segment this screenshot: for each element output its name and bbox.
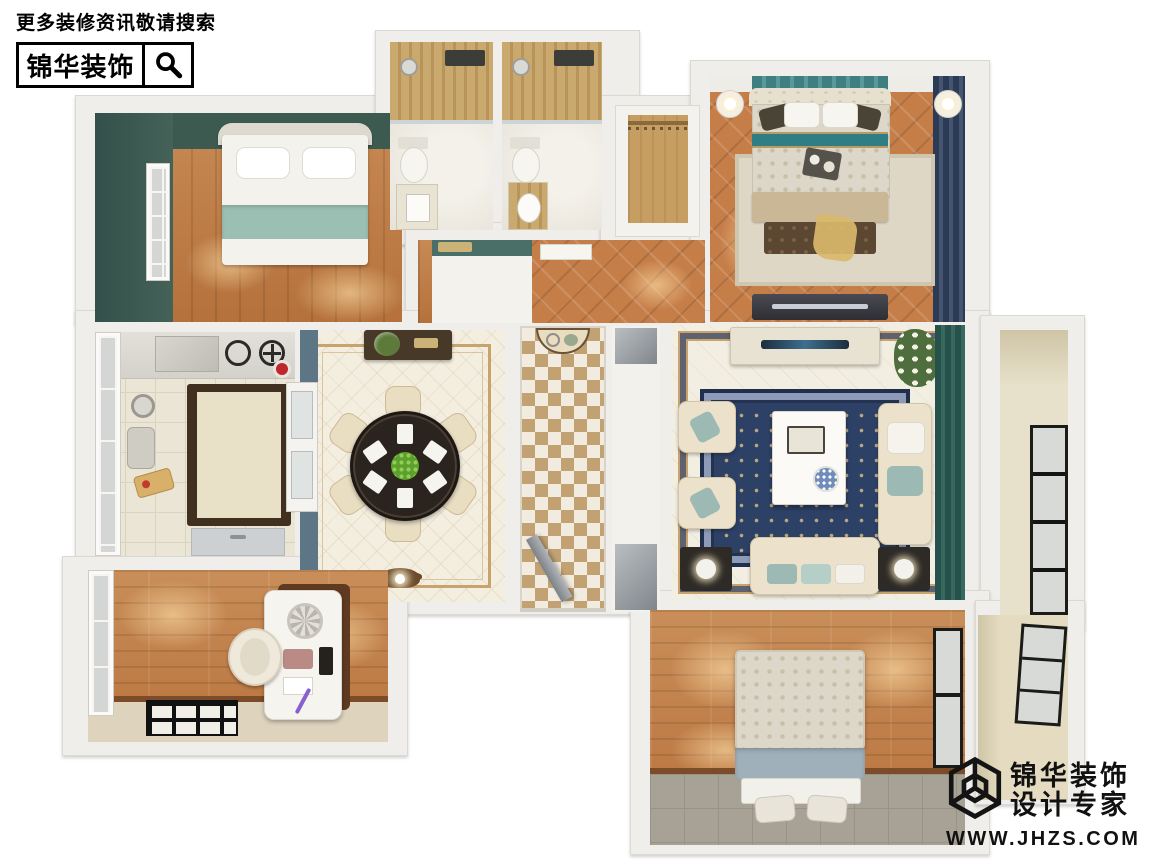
bedroom-br-bed	[735, 650, 865, 828]
cube-logo-icon	[946, 756, 1004, 825]
console-plant	[564, 334, 578, 346]
room-bedroom-bottom	[650, 610, 965, 845]
bath2-shower-head	[512, 58, 530, 76]
master-white-pillow	[784, 102, 820, 128]
living-tv	[761, 340, 849, 349]
study-grid-mat	[146, 700, 238, 736]
master-bed	[752, 88, 888, 256]
bath1-toilet	[400, 147, 428, 183]
armchair-teal-pillow	[688, 410, 721, 444]
closet-wood-interior	[628, 115, 688, 223]
closet-hangers	[628, 127, 688, 130]
living-armchair	[678, 477, 736, 529]
table-centerpiece-plant	[391, 452, 419, 480]
bed-damask-duvet	[735, 650, 865, 750]
place-setting	[397, 424, 413, 444]
room-kitchen	[95, 332, 295, 556]
floorplan-render: 更多装修资讯敬请搜索 锦华装饰	[0, 0, 1158, 868]
bath2-toilet	[512, 147, 540, 183]
alcove-shelf-item	[438, 242, 472, 252]
tray-plate	[809, 154, 821, 166]
loveseat-white-pillow	[887, 422, 925, 454]
bed-pillow	[236, 147, 290, 179]
master-nightstand	[934, 90, 962, 118]
master-nightstand	[716, 90, 744, 118]
china-cabinet-glass	[291, 391, 313, 439]
master-teal-runner	[752, 132, 888, 148]
coffee-table-plate	[813, 466, 839, 492]
side-table-lamp	[696, 559, 716, 579]
room-bathroom-right	[502, 42, 602, 230]
watermark-tagline: 设计专家	[1010, 791, 1130, 819]
watermark-brand-lines: 锦华装饰 设计专家	[1010, 762, 1130, 819]
living-tv-console	[730, 327, 880, 365]
watermark-website: WWW.JHZS.COM	[946, 828, 1156, 851]
place-setting	[362, 470, 388, 495]
study-chair-seat	[240, 638, 270, 676]
bed-blue-blanket	[735, 748, 865, 780]
bath2-shower-set	[554, 50, 594, 66]
bedroom-tl-window	[146, 163, 170, 281]
bath1-vanity	[396, 184, 438, 230]
console-deco	[546, 333, 560, 347]
nightstand-lamp	[942, 98, 954, 110]
bath1-shower-set	[445, 50, 485, 66]
living-curtains	[935, 325, 965, 600]
sideboard-plant	[374, 332, 400, 356]
watermark-brand-name: 锦华装饰	[1010, 762, 1130, 790]
bedroom-tl-bed	[222, 129, 368, 269]
watermark-top: 更多装修资讯敬请搜索 锦华装饰	[16, 8, 216, 88]
room-living	[672, 325, 965, 600]
desk-laptop	[319, 647, 333, 675]
master-gold-throw	[811, 213, 859, 262]
living-flower-plant	[894, 329, 940, 387]
study-window	[88, 570, 114, 716]
tray-plate	[823, 160, 836, 173]
kitchen-island-top	[197, 392, 281, 518]
sofa-cushion-teal	[767, 564, 797, 584]
bath2-sink	[517, 193, 541, 223]
room-bedroom-top-left	[95, 113, 402, 322]
bed-pillow	[754, 794, 796, 823]
room-dining	[300, 330, 505, 602]
corridor-master	[532, 240, 705, 323]
place-setting	[362, 440, 388, 465]
kitchen-range-hood	[155, 336, 219, 372]
living-sofa	[750, 537, 880, 595]
stove-burner	[225, 340, 251, 366]
living-loveseat	[878, 403, 932, 545]
room-entry-hallway	[520, 326, 606, 612]
bed-teal-runner	[222, 205, 368, 239]
place-setting	[397, 488, 413, 508]
kitchen-window	[95, 332, 121, 556]
shoe-cabinet-top	[615, 328, 657, 364]
kitchen-blender	[131, 394, 155, 418]
living-armchair	[678, 401, 736, 453]
room-inner-corridor	[612, 326, 660, 612]
antler-lamp	[395, 574, 405, 584]
watermark-brand-box: 锦华装饰	[16, 42, 194, 88]
window-mullion	[1033, 520, 1065, 524]
alcove-pantry	[432, 240, 532, 323]
master-breakfast-tray	[802, 147, 842, 181]
window-mullion	[1022, 657, 1062, 663]
kitchen-red-pot	[273, 360, 291, 378]
desk-fan	[287, 603, 323, 639]
kitchen-tomato	[141, 479, 151, 489]
kitchen-stove-counter	[121, 332, 295, 379]
bath1-shower-head	[400, 58, 418, 76]
window-mullion	[936, 693, 960, 697]
room-balcony-right	[1000, 330, 1068, 615]
bath2-vanity	[508, 182, 548, 230]
bath1-sink	[406, 194, 430, 222]
dining-china-cabinet	[286, 382, 318, 512]
master-white-pillow	[822, 102, 858, 128]
study-chair	[228, 628, 282, 686]
room-master-bedroom	[710, 76, 965, 322]
sideboard-deco	[414, 338, 438, 348]
entry-threshold	[520, 608, 606, 612]
dining-table	[350, 411, 460, 521]
kitchen-sink	[191, 528, 285, 556]
magnifier-icon	[142, 45, 191, 85]
china-cabinet-glass	[291, 451, 313, 499]
bed-pillow	[806, 794, 848, 823]
kitchen-faucet	[230, 535, 246, 539]
living-side-table	[878, 547, 930, 591]
closet-hanging-rod	[628, 121, 688, 125]
kitchen-utensils	[127, 427, 155, 469]
desk-pad	[283, 649, 313, 669]
watermark-bottom: 锦华装饰 设计专家 WWW.JHZS.COM	[946, 756, 1156, 851]
coffee-table-tray	[787, 426, 825, 454]
bed-pillow	[302, 147, 356, 179]
room-bathroom-left	[390, 42, 493, 230]
watermark-brand-name: 锦华装饰	[19, 45, 142, 85]
shoe-cabinet-bottom	[615, 544, 657, 610]
room-study	[88, 570, 388, 742]
living-side-table	[680, 547, 732, 591]
window-mullion	[1020, 689, 1060, 695]
connector-wood-sliver	[418, 240, 432, 323]
master-tv-console	[752, 294, 888, 320]
side-table-lamp	[894, 559, 914, 579]
sofa-cushion-teal-light	[801, 564, 831, 584]
nightstand-lamp	[724, 98, 736, 110]
living-coffee-table	[772, 411, 846, 505]
sofa-cushion-white	[835, 564, 865, 584]
window-mullion	[1033, 472, 1065, 476]
balcony-right-wall-shade	[1000, 330, 1068, 385]
dining-sideboard	[364, 330, 452, 360]
armchair-teal-pillow	[688, 486, 721, 520]
loveseat-teal-pillow	[887, 466, 923, 496]
hallway-mosaic-floor	[520, 326, 606, 612]
kitchen-island	[187, 384, 291, 526]
window-mullion	[1033, 568, 1065, 572]
corridor-shelf	[540, 244, 592, 260]
balcony-right-window	[1030, 425, 1068, 615]
place-setting	[422, 440, 448, 465]
master-tv	[772, 304, 868, 309]
watermark-search-hint: 更多装修资讯敬请搜索	[16, 8, 216, 35]
balcony-br-window	[1015, 624, 1068, 727]
room-closet	[615, 105, 700, 237]
bedroom-br-window	[933, 628, 963, 768]
place-setting	[422, 470, 448, 495]
